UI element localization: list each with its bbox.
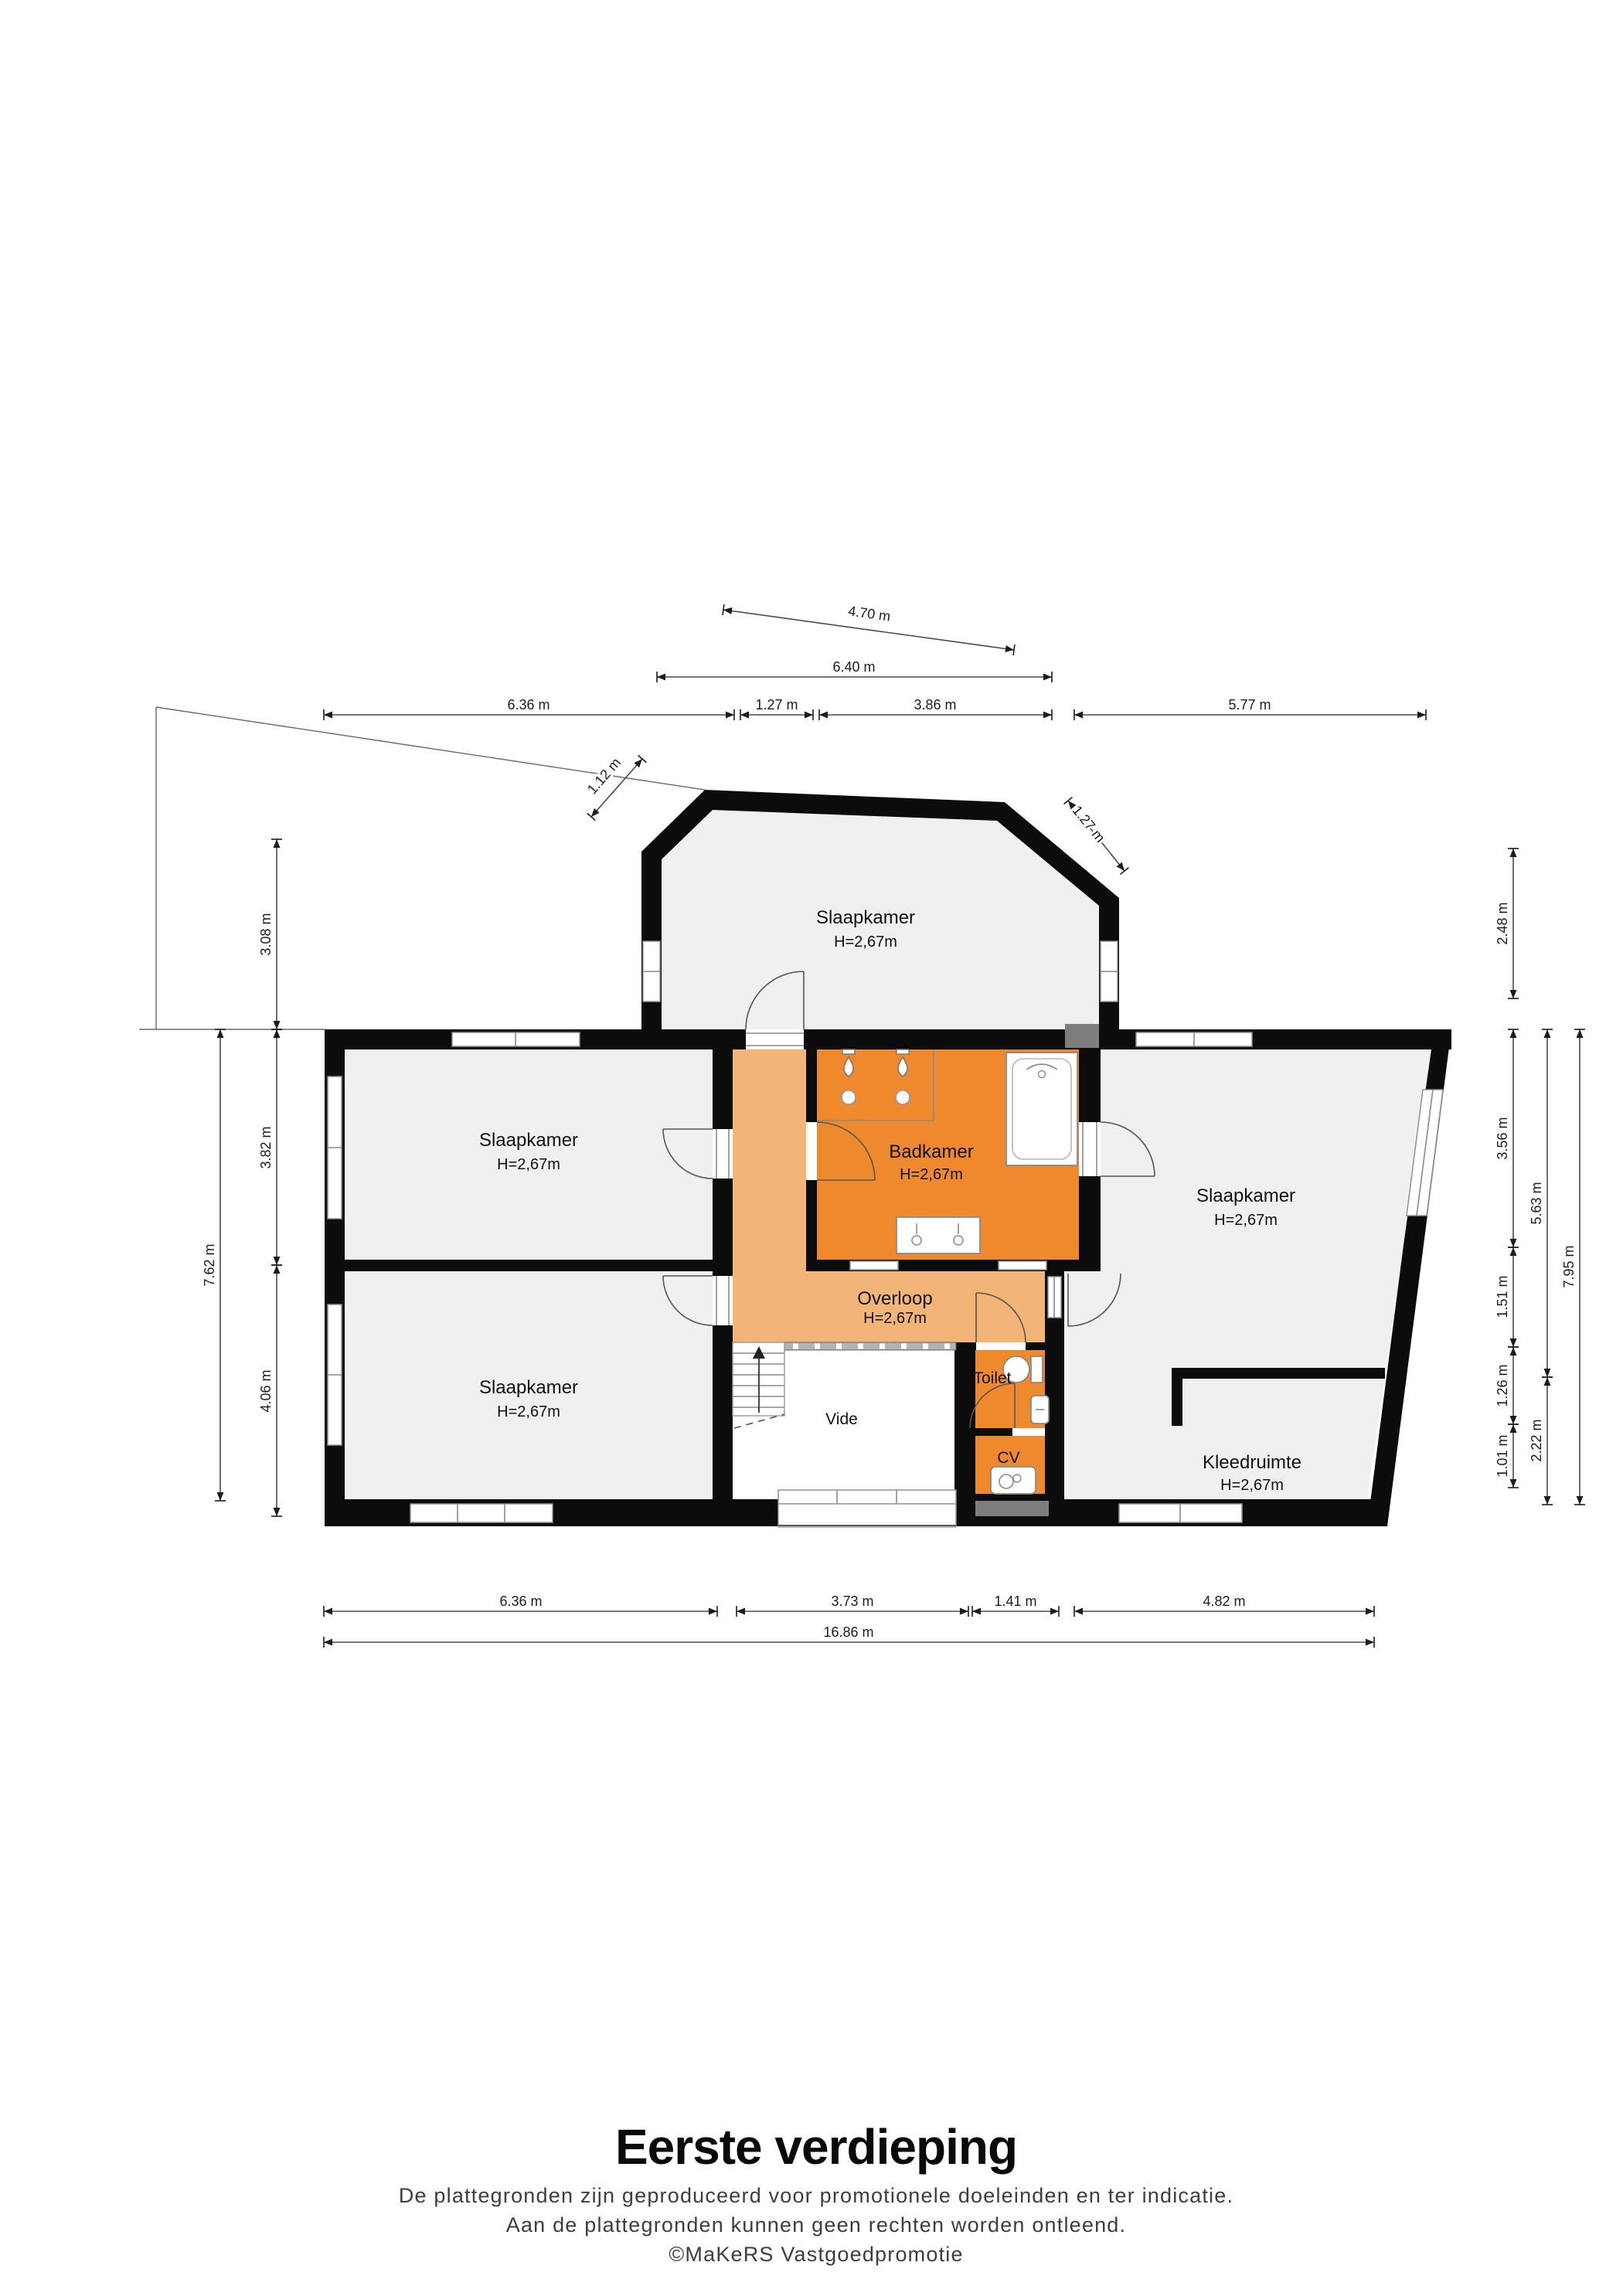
reference-lines [139,707,705,1029]
room-height-slaapkamer-right: H=2,67m [1214,1212,1278,1229]
balustrade [784,1342,956,1350]
dimension-label: 2.22 m [1529,1419,1544,1461]
window [850,1261,898,1270]
room-slaapkamer-left-floor [345,1049,713,1260]
room-height-slaapkamer-left: H=2,67m [497,1156,560,1173]
dimension-label: 3.56 m [1495,1117,1510,1159]
room-label-slaapkamer-top: Slaapkamer [816,907,915,928]
floor-plan-page: Slaapkamer H=2,67m Slaapkamer H=2,67m Sl… [0,0,1623,2296]
dimension-label: 2.48 m [1495,902,1510,944]
floor-plan-canvas: Slaapkamer H=2,67m Slaapkamer H=2,67m Sl… [0,0,1623,2296]
window [328,1077,342,1219]
boiler [991,1467,1036,1494]
room-label-vide: Vide [825,1410,858,1428]
dimension-label: 4.82 m [1203,1594,1245,1609]
door-opening [1079,1122,1101,1176]
dimension-label: 7.62 m [202,1243,217,1286]
dimension-label: 6.40 m [832,659,875,675]
door-opening [746,1029,804,1049]
window [452,1032,580,1046]
dimension-label: 4.70 m [847,603,891,624]
window [999,1261,1046,1270]
room-label-toilet: Toilet [973,1369,1011,1387]
dimension-label: 3.86 m [914,697,956,713]
door-opening [713,1276,733,1325]
window [778,1490,956,1504]
footer-line-2: Aan de plattegronden kunnen geen rechten… [506,2213,1126,2236]
window [410,1504,553,1522]
hand-basin [1031,1396,1049,1424]
dimension-label: 6.36 m [507,697,550,713]
room-height-slaapkamer-left2: H=2,67m [497,1403,560,1420]
room-label-slaapkamer-left: Slaapkamer [479,1130,578,1151]
dimension-label: 1.41 m [994,1594,1036,1609]
room-right-section-floor [1064,1049,1431,1499]
dimension-label: 16.86 m [823,1624,873,1640]
room-height-overloop: H=2,67m [863,1310,927,1327]
room-label-kleedruimte: Kleedruimte [1203,1452,1301,1473]
dimension-label: 4.06 m [258,1369,274,1412]
window [1119,1504,1242,1522]
dimension-label: 3.82 m [258,1126,274,1168]
dimension-label: 3.73 m [831,1594,873,1609]
bathtub [1006,1053,1077,1165]
page-title: Eerste verdieping [615,2119,1017,2175]
window [1101,941,1118,1002]
footer: Eerste verdieping De plattegronden zijn … [399,2119,1233,2266]
shaft [1065,1024,1099,1048]
room-overloop-corridor [733,1049,806,1342]
dimension-label: 6.36 m [499,1594,542,1609]
dimension-label: 1.27 m [1070,803,1108,845]
dimension-label: 3.08 m [258,913,274,955]
footer-credit: ©MaKeRS Vastgoedpromotie [669,2243,963,2266]
room-fills [345,1049,1431,1499]
dimension-label: 5.77 m [1228,697,1271,713]
vanity-sink [897,1217,980,1253]
door-opening [1012,1428,1045,1436]
room-label-cv: CV [997,1449,1019,1467]
window [328,1304,342,1445]
window [1136,1032,1252,1046]
room-height-slaapkamer-top: H=2,67m [834,934,897,951]
room-height-kleedruimte: H=2,67m [1220,1477,1284,1494]
dimension-label: 1.12 m [584,755,624,798]
footer-line-1: De plattegronden zijn geproduceerd voor … [399,2184,1233,2207]
window [643,941,660,1002]
dimension-label: 5.63 m [1529,1182,1544,1224]
dimension-label: 1.27 m [755,697,798,713]
room-height-badkamer: H=2,67m [900,1166,963,1183]
staircase [733,1342,784,1428]
dimension-label: 1.51 m [1495,1275,1510,1318]
room-label-badkamer: Badkamer [889,1141,973,1162]
room-label-slaapkamer-left2: Slaapkamer [479,1377,578,1398]
room-label-overloop: Overloop [857,1288,932,1309]
dimension-label: 1.26 m [1495,1364,1510,1407]
void-below-window [778,1504,956,1527]
room-overloop-hall [806,1271,1064,1342]
dimension-label: 7.95 m [1561,1245,1577,1287]
door-opening [713,1129,733,1179]
door-opening [806,1122,817,1180]
dimension-label: 1.01 m [1495,1434,1510,1477]
shaft [975,1501,1049,1516]
door-opening [976,1342,1026,1350]
room-label-slaapkamer-right: Slaapkamer [1196,1185,1295,1206]
